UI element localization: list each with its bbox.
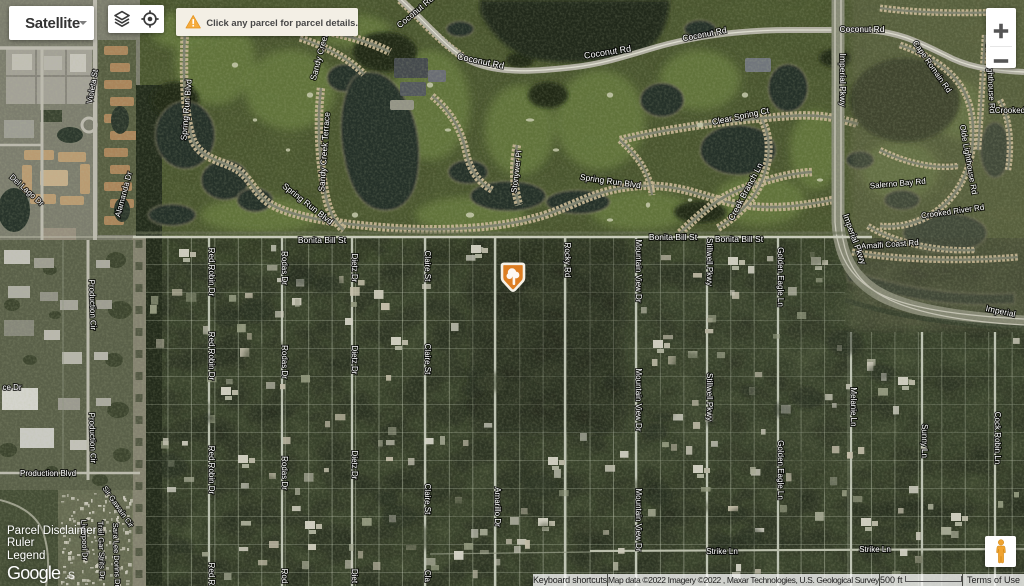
- svg-text:Rocky Rd: Rocky Rd: [563, 243, 572, 278]
- svg-text:Dietz Dr: Dietz Dr: [350, 451, 359, 480]
- svg-text:Red Robin Dr: Red Robin Dr: [207, 248, 216, 297]
- svg-text:Imperial Pkwy: Imperial Pkwy: [838, 54, 848, 108]
- svg-text:Cock Robin Ln: Cock Robin Ln: [993, 412, 1002, 464]
- svg-text:Red Robin Dr: Red Robin Dr: [207, 332, 216, 381]
- svg-text:Production Blvd: Production Blvd: [20, 469, 76, 478]
- svg-text:Golden Eagle Ln: Golden Eagle Ln: [776, 440, 785, 500]
- svg-text:Mountain View Dr: Mountain View Dr: [634, 240, 643, 303]
- svg-text:Rodas Dr: Rodas Dr: [280, 251, 289, 285]
- svg-text:Coconut Rd: Coconut Rd: [840, 24, 885, 34]
- svg-text:Dietz Dr: Dietz Dr: [350, 254, 359, 283]
- svg-text:Diet: Diet: [350, 569, 359, 584]
- svg-text:Sunny Ln: Sunny Ln: [920, 424, 929, 458]
- svg-text:Stillwell Pkwy: Stillwell Pkwy: [705, 238, 714, 286]
- svg-text:Bonita Bill St: Bonita Bill St: [715, 234, 764, 244]
- svg-text:Bonita Bill St: Bonita Bill St: [298, 235, 347, 245]
- svg-text:Production Cir: Production Cir: [87, 279, 98, 330]
- svg-text:Stillwell Pkwy: Stillwell Pkwy: [705, 373, 714, 421]
- svg-text:Claire St: Claire St: [423, 484, 432, 515]
- svg-text:Strike Ln: Strike Ln: [706, 547, 738, 556]
- svg-text:Dietz Dr: Dietz Dr: [350, 346, 359, 375]
- svg-text:Rodas Dr: Rodas Dr: [280, 345, 289, 379]
- svg-text:Rod: Rod: [280, 569, 289, 584]
- svg-text:Cla: Cla: [423, 570, 432, 583]
- svg-text:Red Robin Dr: Red Robin Dr: [207, 446, 216, 495]
- svg-text:ce Dr: ce Dr: [2, 383, 21, 392]
- svg-text:Amarillo Dr: Amarillo Dr: [493, 487, 502, 527]
- svg-text:Crooked: Crooked: [995, 106, 1024, 115]
- svg-text:Production Cir: Production Cir: [87, 412, 98, 463]
- svg-text:Rodas Dr: Rodas Dr: [280, 456, 289, 490]
- svg-text:Bonita Bill St: Bonita Bill St: [649, 232, 698, 242]
- svg-text:Claire St: Claire St: [423, 344, 432, 375]
- svg-text:Red R: Red R: [207, 563, 216, 586]
- svg-text:Claire St: Claire St: [423, 251, 432, 282]
- svg-text:Melanie Ln: Melanie Ln: [849, 387, 858, 426]
- svg-text:Golden Eagle Ln: Golden Eagle Ln: [776, 247, 785, 307]
- svg-text:Mountain View Dr: Mountain View Dr: [634, 489, 643, 552]
- svg-text:Strike Ln: Strike Ln: [859, 545, 891, 554]
- svg-text:Mountain View Dr: Mountain View Dr: [634, 369, 643, 432]
